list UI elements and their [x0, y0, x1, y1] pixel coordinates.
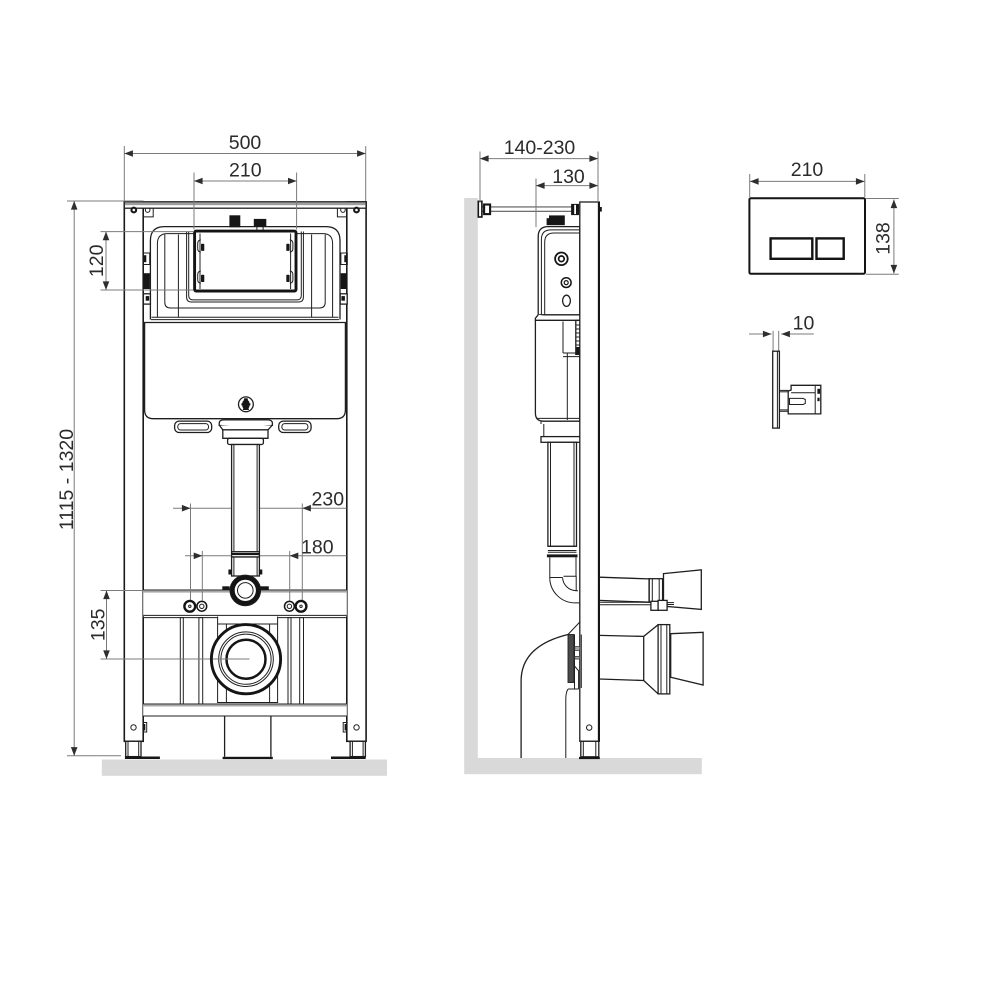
svg-text:120: 120: [86, 244, 108, 277]
svg-text:180: 180: [301, 537, 334, 559]
svg-text:210: 210: [791, 159, 824, 181]
svg-text:10: 10: [793, 313, 815, 335]
svg-text:138: 138: [872, 222, 894, 255]
svg-text:1115 - 1320: 1115 - 1320: [56, 429, 78, 530]
svg-text:210: 210: [229, 160, 262, 182]
svg-text:230: 230: [312, 489, 345, 511]
svg-text:500: 500: [229, 132, 262, 154]
svg-text:135: 135: [88, 608, 110, 641]
svg-text:130: 130: [552, 166, 585, 188]
svg-text:140-230: 140-230: [504, 137, 576, 159]
